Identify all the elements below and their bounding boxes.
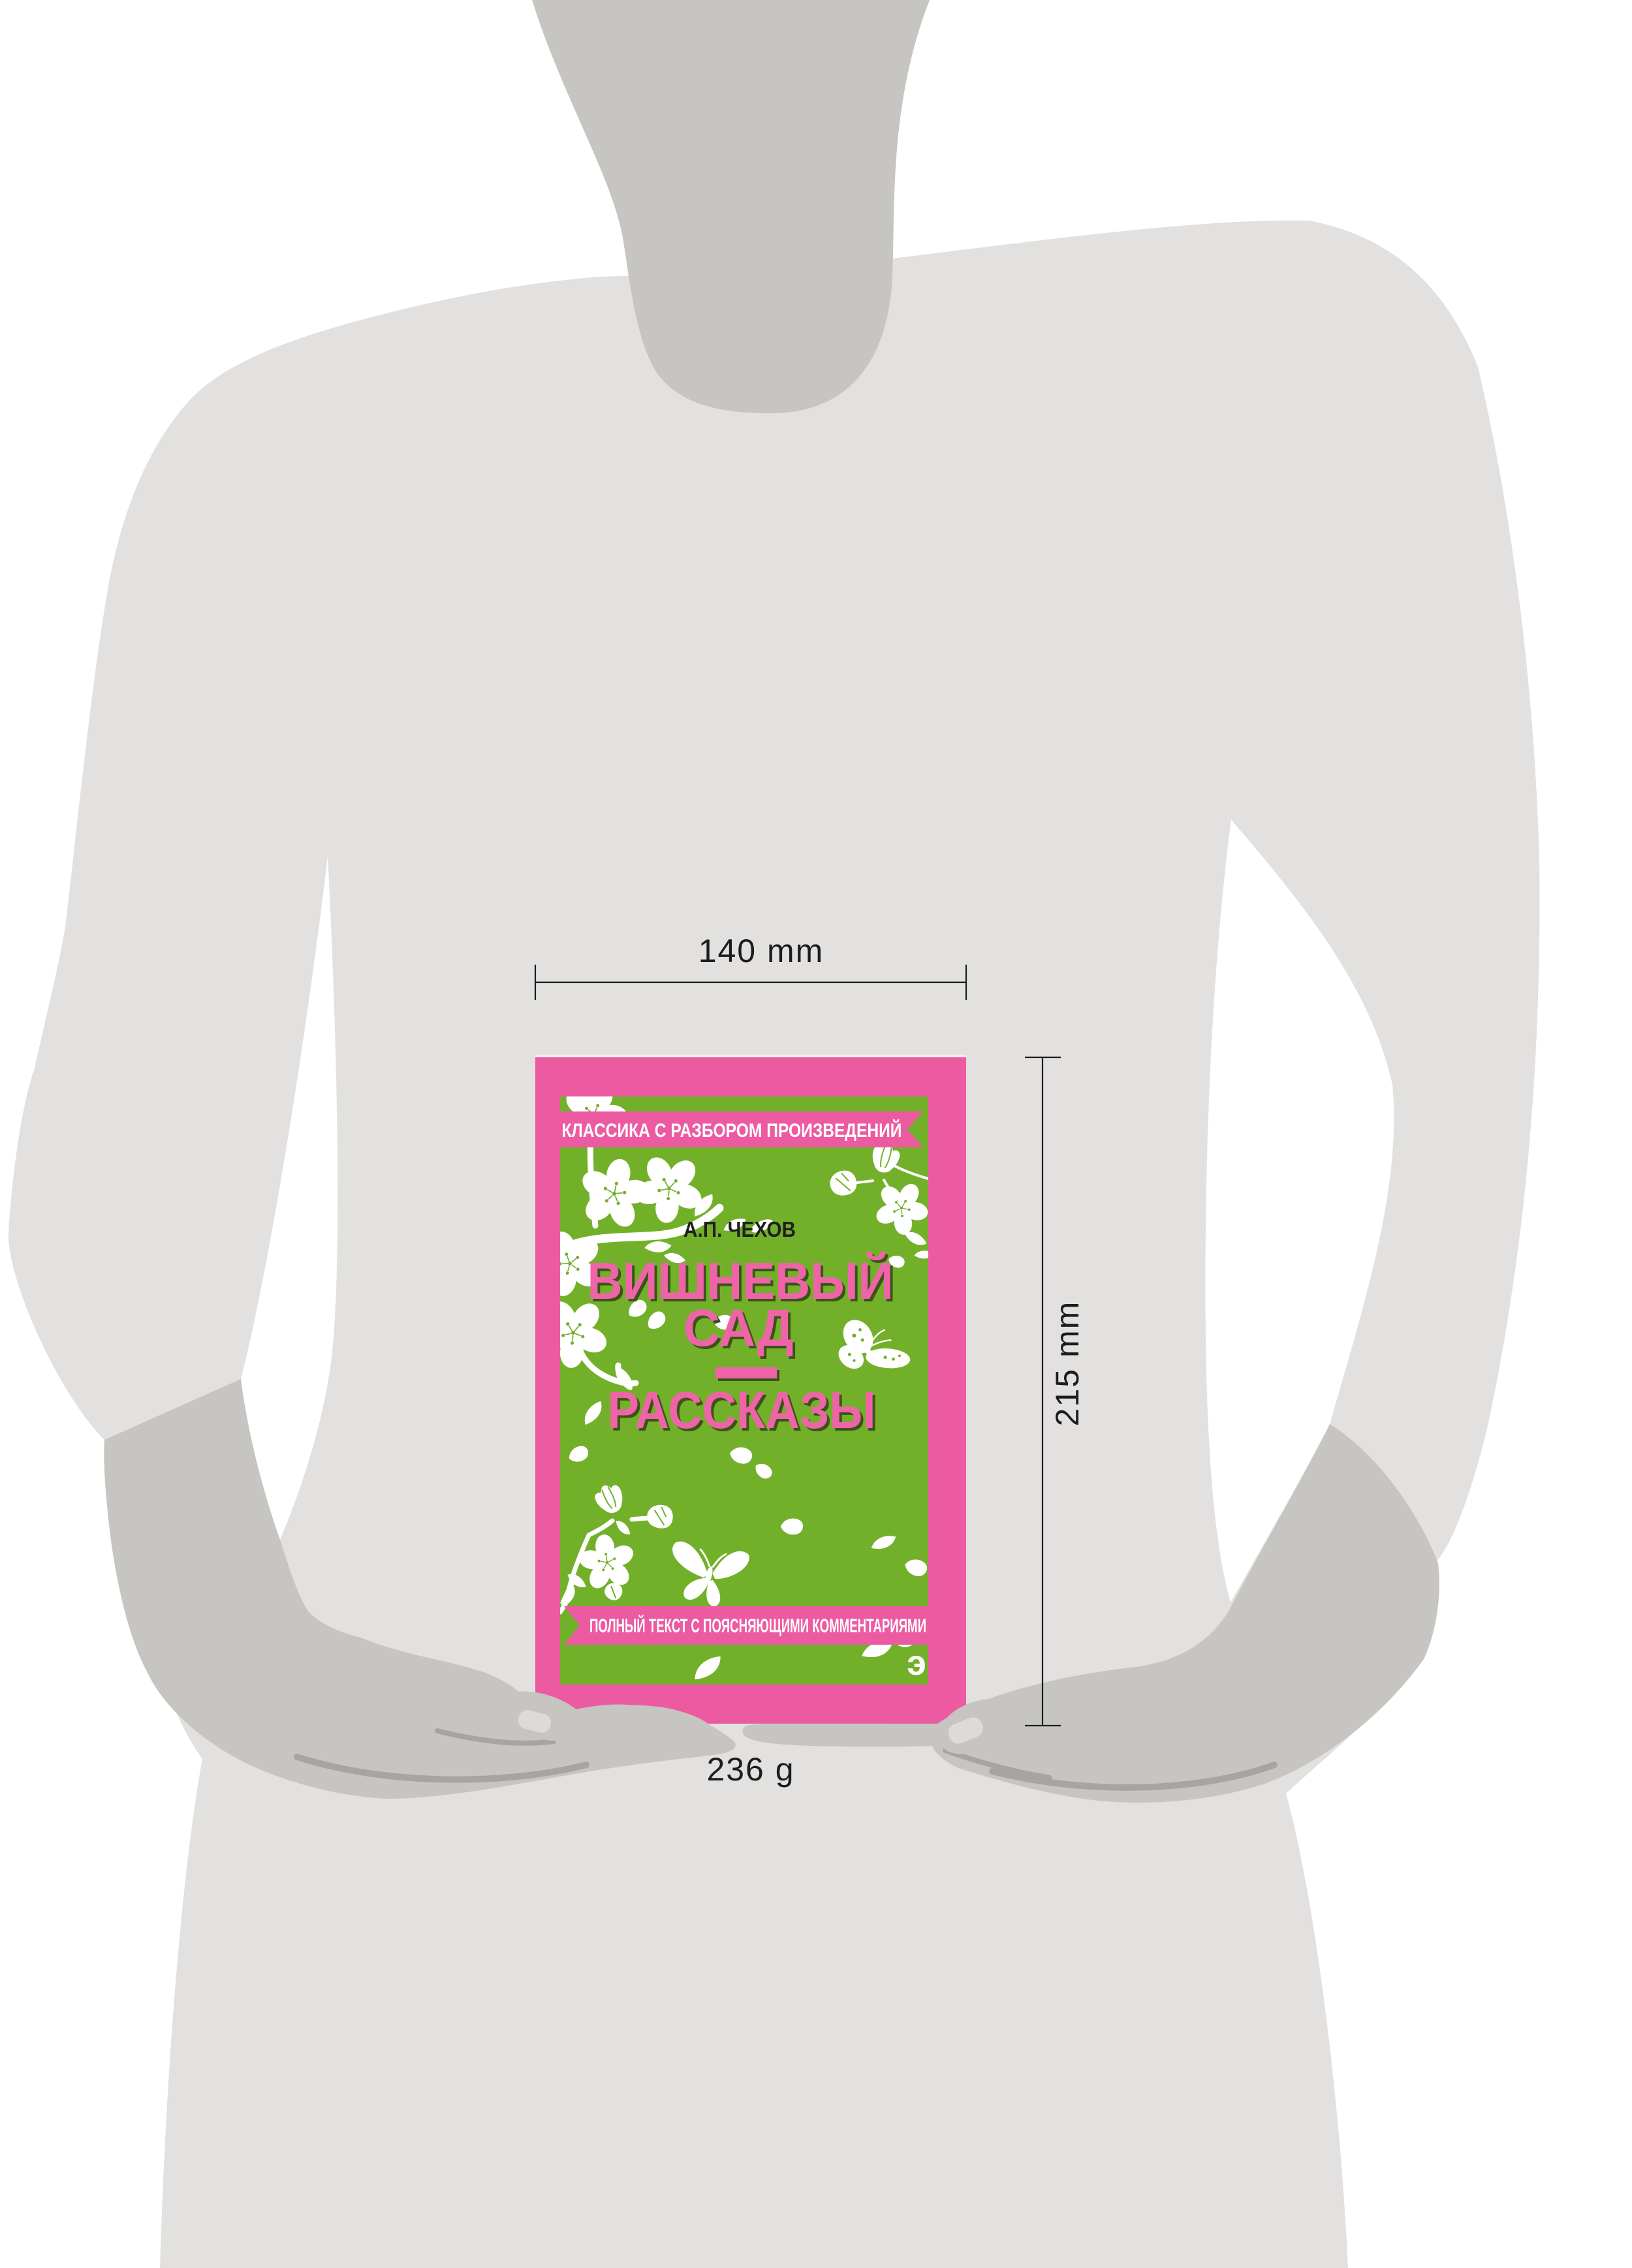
svg-text:КЛАССИКА С РАЗБОРОМ ПРОИЗВЕДЕН: КЛАССИКА С РАЗБОРОМ ПРОИЗВЕДЕНИЙ: [562, 1119, 902, 1142]
svg-text:САД: САД: [683, 1299, 794, 1357]
svg-text:140 mm: 140 mm: [698, 933, 824, 969]
svg-text:РАССКАЗЫ: РАССКАЗЫ: [608, 1381, 876, 1439]
svg-text:э: э: [907, 1643, 926, 1683]
svg-text:А.П. ЧЕХОВ: А.П. ЧЕХОВ: [683, 1217, 796, 1241]
svg-text:236 g: 236 g: [706, 1751, 794, 1788]
svg-text:215 mm: 215 mm: [1049, 1301, 1086, 1427]
svg-text:ПОЛНЫЙ ТЕКСТ С ПОЯСНЯЮЩИМИ КОМ: ПОЛНЫЙ ТЕКСТ С ПОЯСНЯЮЩИМИ КОММЕНТАРИЯМИ: [589, 1615, 926, 1637]
